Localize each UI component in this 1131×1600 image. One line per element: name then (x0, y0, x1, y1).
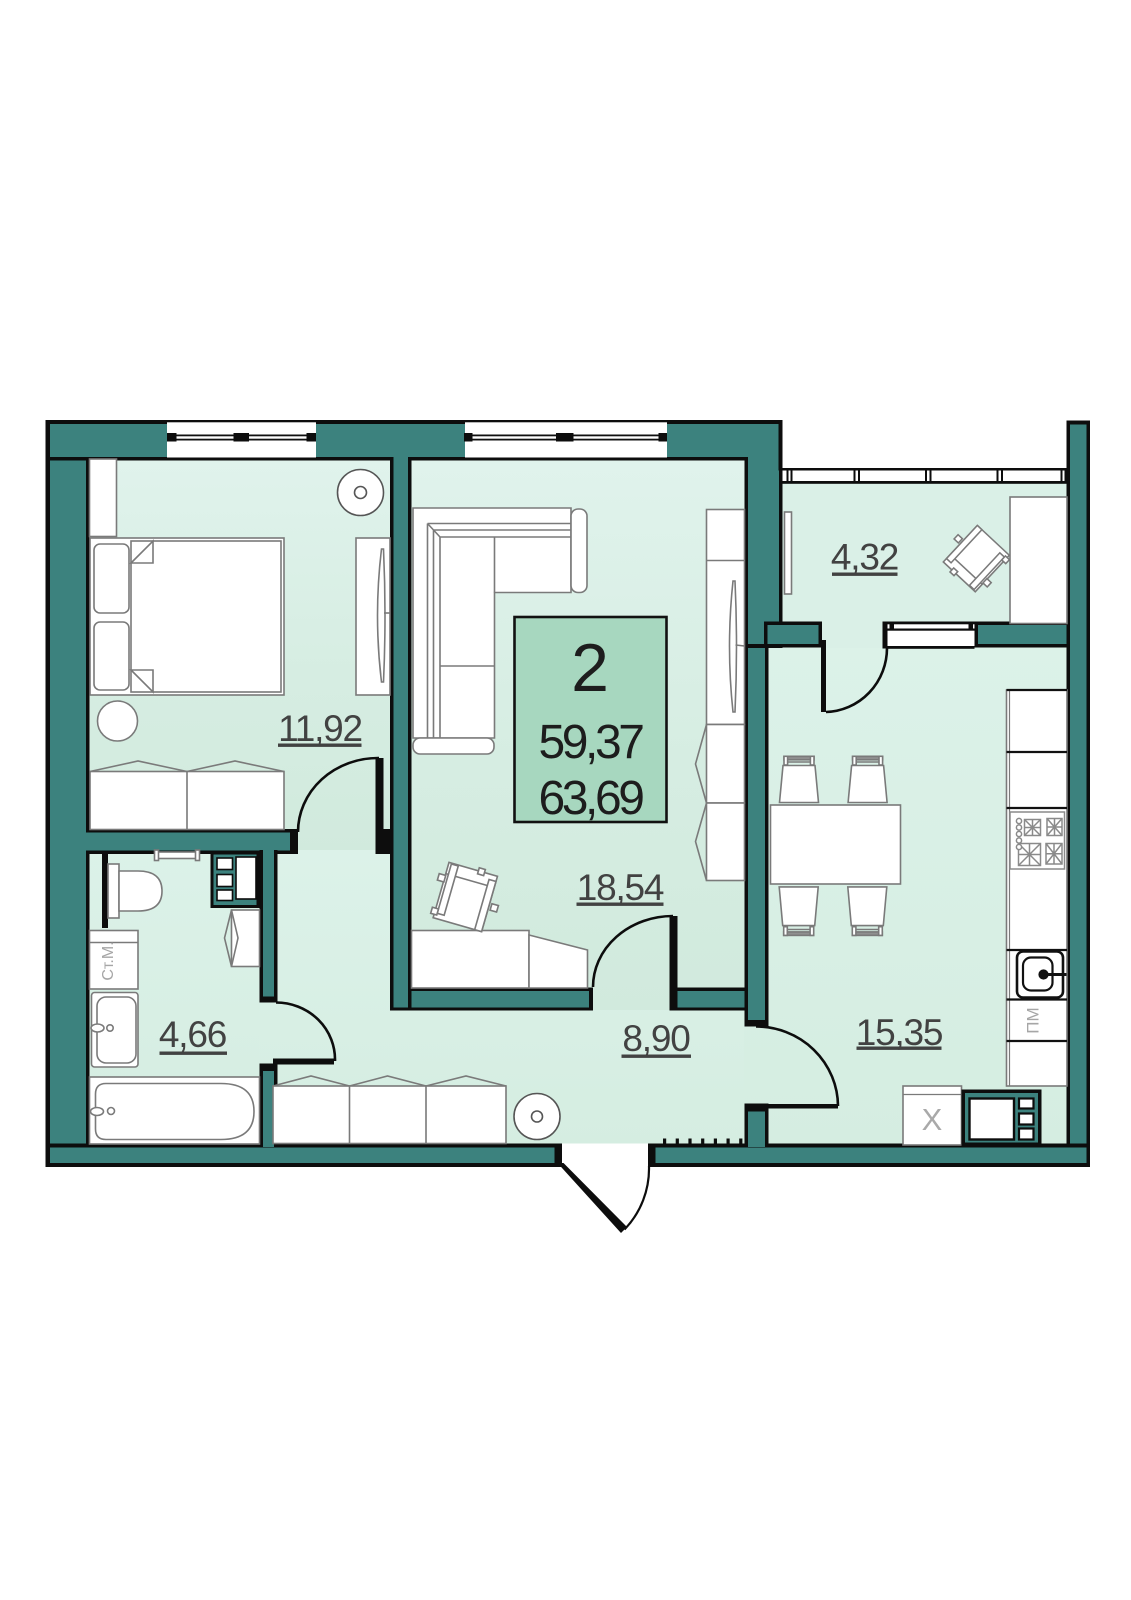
svg-text:11,92: 11,92 (278, 708, 362, 749)
svg-text:63,69: 63,69 (538, 772, 643, 825)
svg-text:4,32: 4,32 (831, 537, 898, 578)
svg-text:59,37: 59,37 (538, 716, 643, 769)
svg-text:X: X (922, 1102, 943, 1137)
svg-text:Ст.М.: Ст.М. (100, 941, 117, 980)
svg-text:ПМ: ПМ (1024, 1007, 1043, 1033)
svg-text:18,54: 18,54 (577, 867, 664, 908)
svg-text:8,90: 8,90 (622, 1018, 690, 1059)
svg-text:4,66: 4,66 (159, 1014, 226, 1055)
svg-text:2: 2 (571, 630, 609, 706)
